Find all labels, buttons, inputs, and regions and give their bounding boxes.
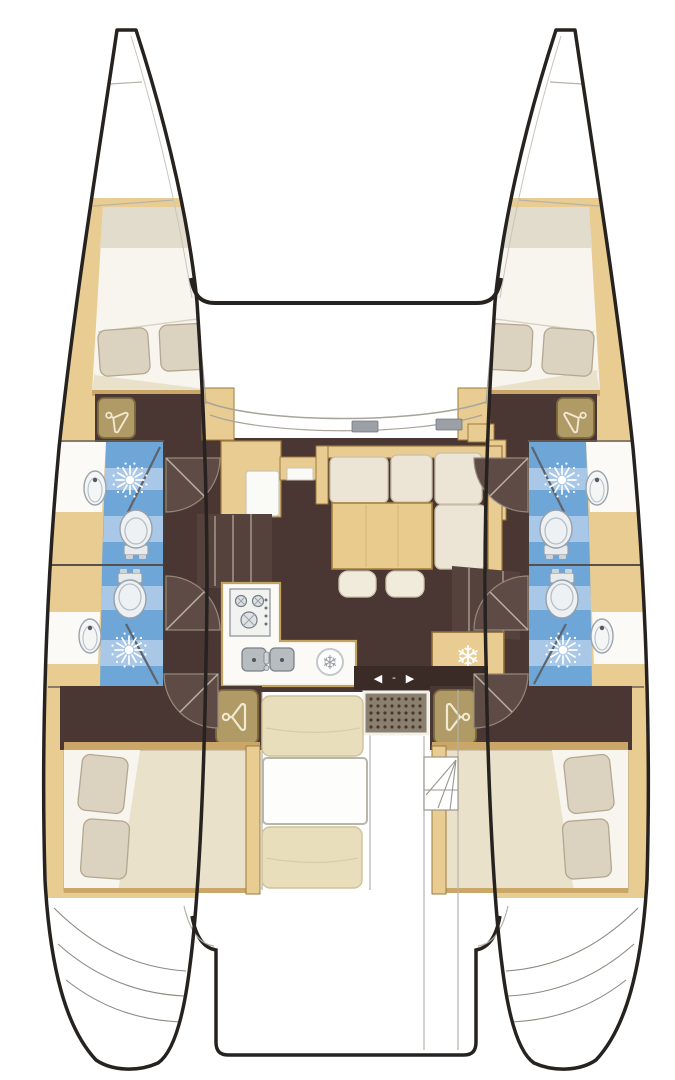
pillow [77,754,129,815]
port-aft-cabin [64,742,260,894]
shower-icon [113,463,148,498]
pillow [159,323,219,372]
port-aft-cabin-wall [246,746,260,894]
grate-frame [364,692,428,734]
toilet-icon [546,569,578,618]
pillow [541,327,594,376]
port-forward-cabinet [202,388,234,440]
cockpit-bench [262,696,367,888]
bench-cushion [262,696,363,756]
toilet-icon [540,510,572,559]
galley-stove [230,589,270,636]
cockpit-grate [364,692,428,734]
stbd-aft-headboard [432,742,628,750]
pillow [473,323,533,372]
slide-arrow-right-icon: ▶ [406,672,415,685]
salon-table [332,503,432,569]
pillow [563,754,615,815]
port-forward-bed-head-band [100,207,215,248]
port-aft-headboard [64,742,260,750]
settee-corner-cushion [435,505,486,569]
stool [386,571,424,597]
stbd-aft-cabin [432,742,628,894]
fridge-snowflake-icon: ❄ [322,652,338,674]
port-aft-bed-edge [64,888,246,893]
cockpit-table [263,758,367,824]
catamaran-floor-plan-page: ❄ ❄ ◀ - ▶ [0,0,675,1080]
shower-icon [546,633,581,668]
transom-echo-lines [184,906,508,946]
stbd-forward-bed-head-band [477,207,592,248]
pillow [97,327,150,376]
toilet-icon [114,569,146,618]
slide-arrow-separator: - [392,671,396,684]
inner-hull-lines [197,306,495,404]
washbasin-icon [79,619,101,653]
salon: ❄ ❄ ◀ - ▶ [197,388,520,692]
console-shelf-top [287,468,313,480]
cockpit-transom-outline [192,916,500,1055]
shower-icon [112,633,147,668]
settee-cushion [330,457,388,503]
settee-cushion [391,455,432,502]
pillow [562,818,612,879]
washbasin-icon [586,471,608,505]
vent-icon [436,419,462,430]
forward-crossbeam [191,278,501,303]
pillow [80,818,130,879]
cockpit [262,690,458,1050]
vent-icon [352,421,378,432]
faucet-icon [264,652,269,664]
settee-end-cap [316,446,328,504]
catamaran-floor-plan: ❄ ❄ ◀ - ▶ [0,0,675,1080]
cockpit-steps [424,757,458,810]
toilet-icon [120,510,152,559]
windshield-line [206,402,486,419]
washbasin-icon [84,471,106,505]
slide-arrow-left-icon: ◀ [374,672,383,685]
shower-icon [545,463,580,498]
stbd-forward-shelf [468,424,494,442]
console-seat [246,471,279,516]
stool [339,571,376,597]
bench-cushion [262,827,362,888]
stbd-aft-bed-edge [446,888,628,893]
washbasin-icon [591,619,613,653]
